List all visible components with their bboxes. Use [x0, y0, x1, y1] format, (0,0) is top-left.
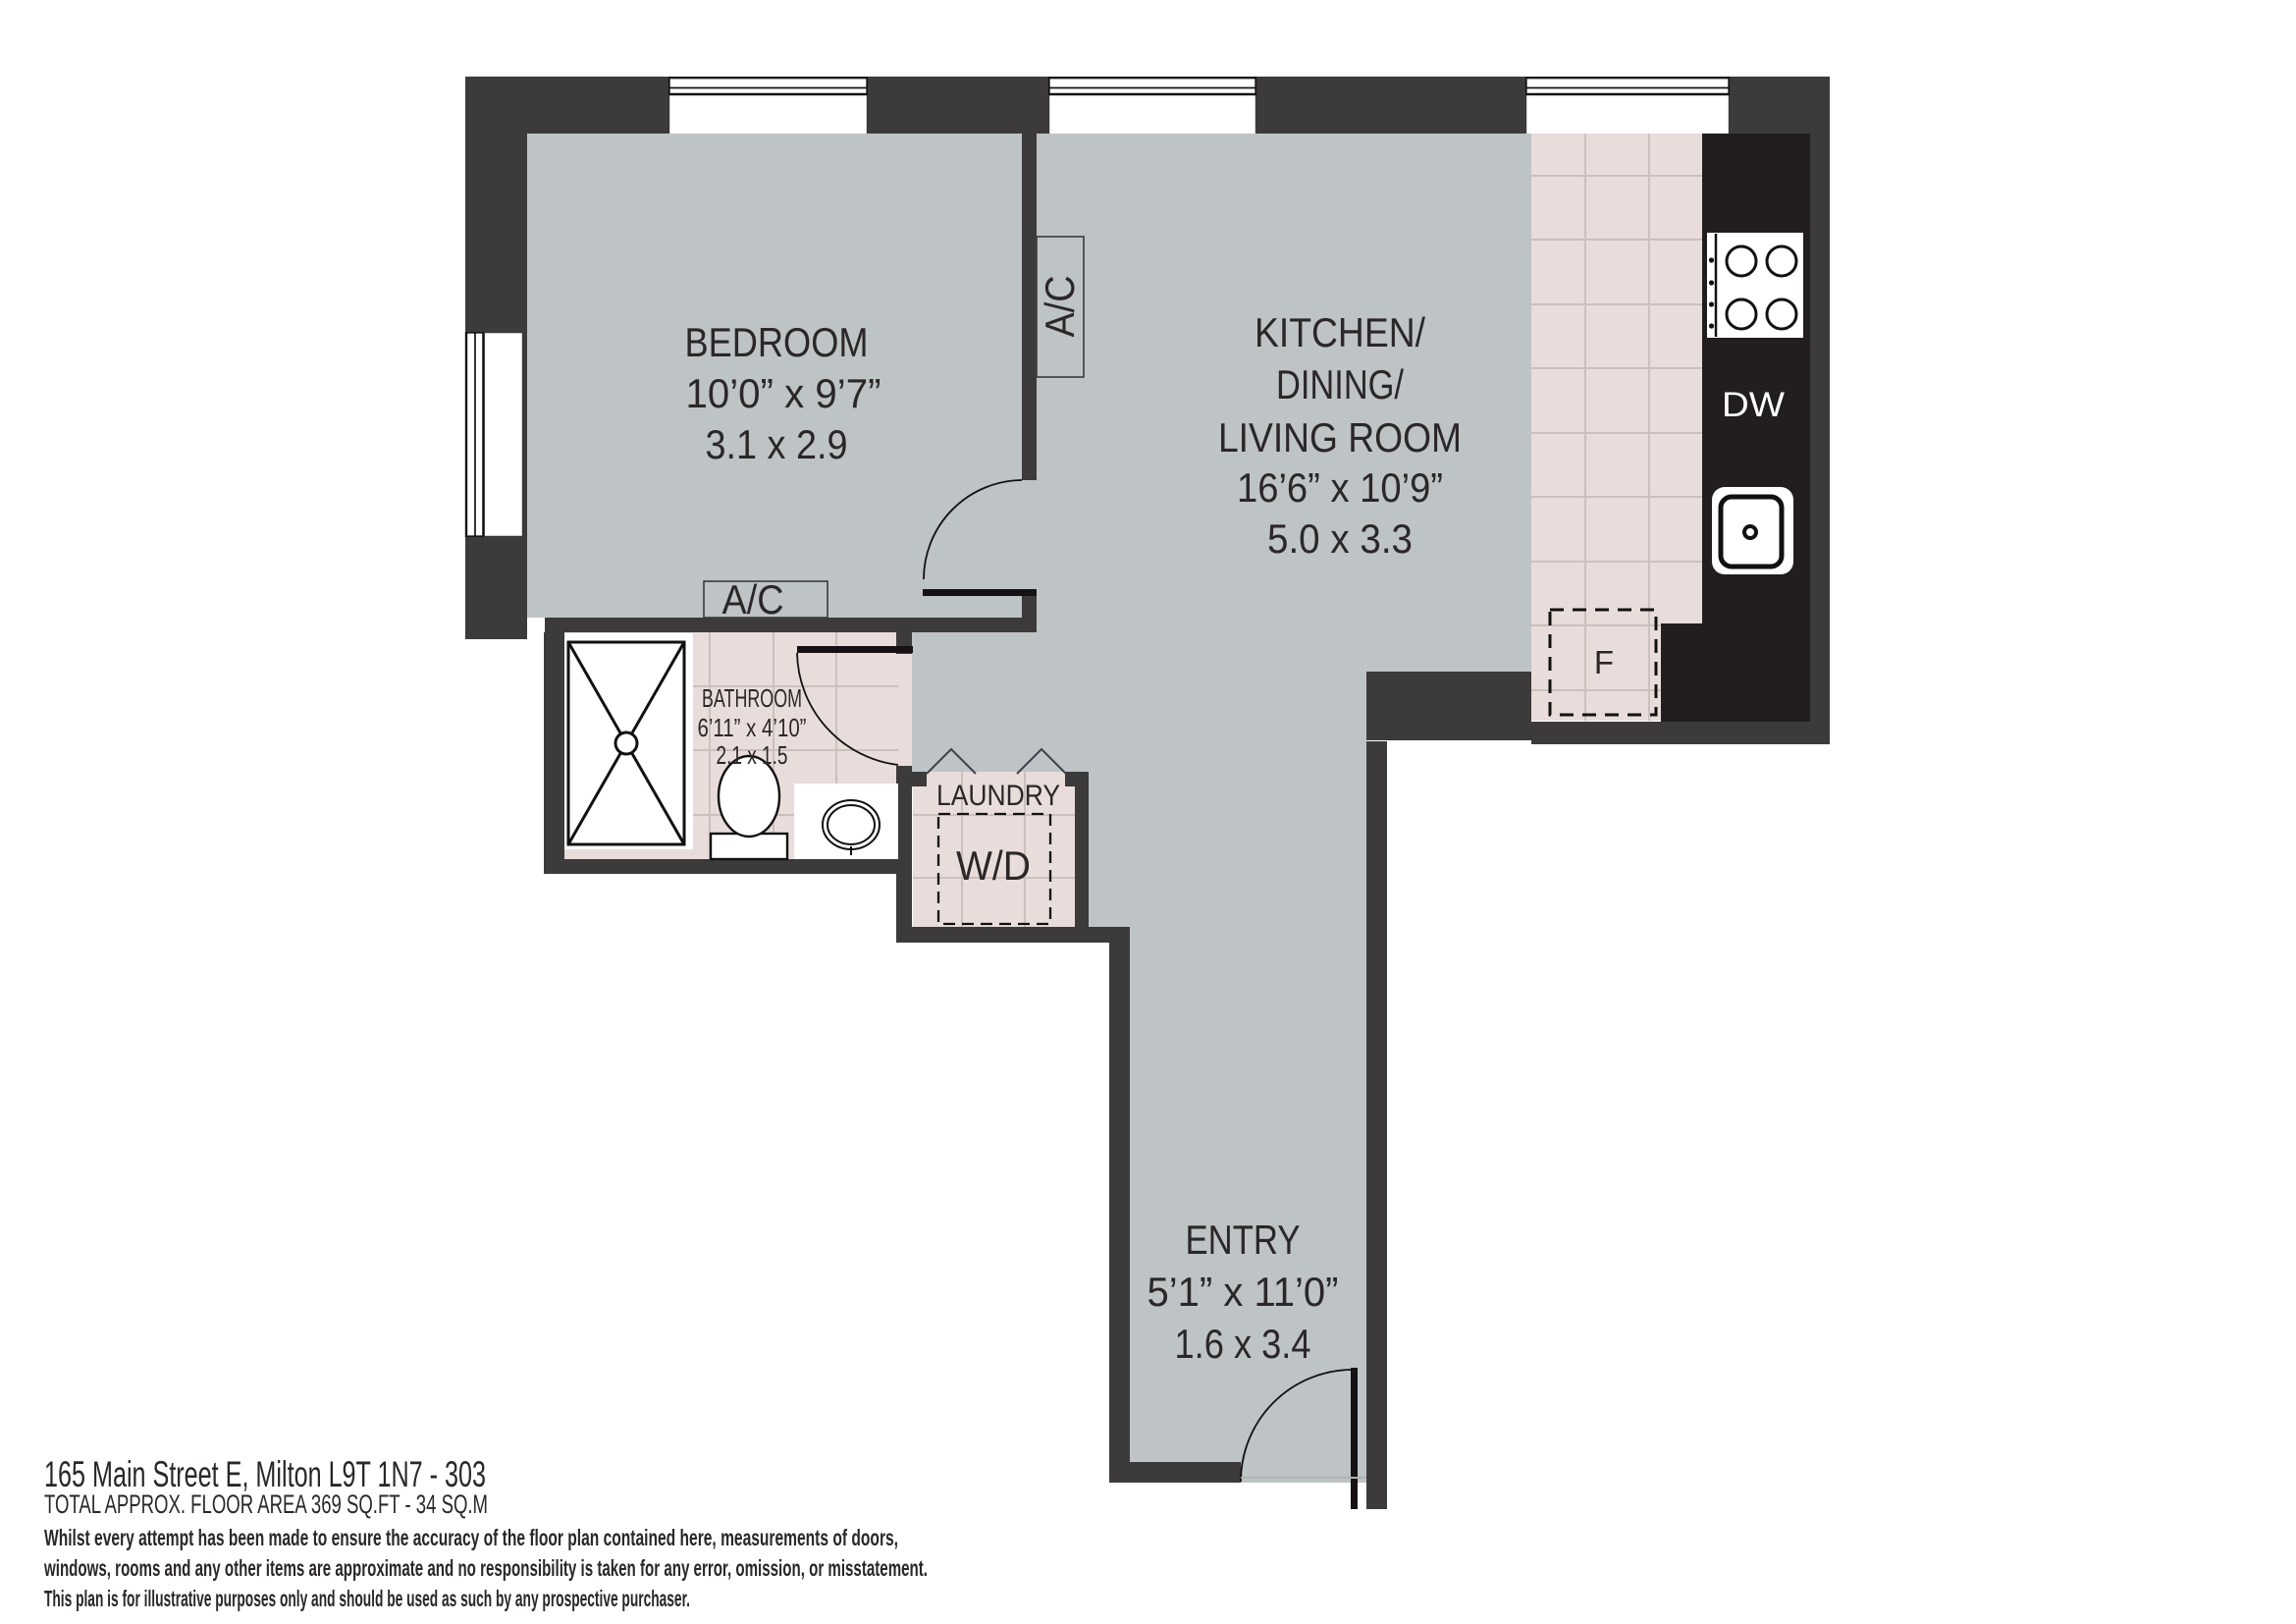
svg-text:LIVING ROOM: LIVING ROOM — [1218, 414, 1462, 460]
svg-text:6’11” x 4’10”: 6’11” x 4’10” — [698, 713, 807, 742]
svg-text:A/C: A/C — [1037, 276, 1083, 338]
svg-text:BEDROOM: BEDROOM — [685, 319, 869, 365]
svg-text:2.1 x 1.5: 2.1 x 1.5 — [717, 740, 788, 770]
svg-text:BATHROOM: BATHROOM — [702, 683, 802, 713]
svg-text:3.1 x 2.9: 3.1 x 2.9 — [706, 421, 848, 467]
svg-text:TOTAL APPROX. FLOOR AREA 369 S: TOTAL APPROX. FLOOR AREA 369 SQ.FT - 34 … — [44, 1489, 488, 1519]
svg-text:10’0” x 9’7”: 10’0” x 9’7” — [686, 370, 881, 416]
svg-text:windows, rooms and any other i: windows, rooms and any other items are a… — [43, 1555, 928, 1581]
svg-text:F: F — [1594, 644, 1614, 680]
svg-text:5’1” x 11’0”: 5’1” x 11’0” — [1148, 1269, 1339, 1315]
svg-text:16’6” x 10’9”: 16’6” x 10’9” — [1237, 464, 1443, 511]
svg-text:KITCHEN/: KITCHEN/ — [1255, 309, 1425, 355]
svg-text:DINING/: DINING/ — [1276, 361, 1404, 407]
svg-text:5.0 x 3.3: 5.0 x 3.3 — [1267, 515, 1413, 562]
svg-text:ENTRY: ENTRY — [1186, 1217, 1301, 1263]
svg-text:A/C: A/C — [722, 576, 784, 623]
svg-text:This plan is for illustrative: This plan is for illustrative purposes o… — [44, 1586, 690, 1611]
svg-text:LAUNDRY: LAUNDRY — [936, 780, 1060, 812]
svg-text:1.6 x 3.4: 1.6 x 3.4 — [1175, 1321, 1311, 1367]
svg-text:W/D: W/D — [956, 842, 1031, 889]
svg-text:DW: DW — [1722, 386, 1785, 424]
svg-text:165 Main Street E, Milton L9T: 165 Main Street E, Milton L9T 1N7 - 303 — [44, 1454, 486, 1494]
svg-text:Whilst every attempt has been: Whilst every attempt has been made to en… — [44, 1525, 898, 1550]
